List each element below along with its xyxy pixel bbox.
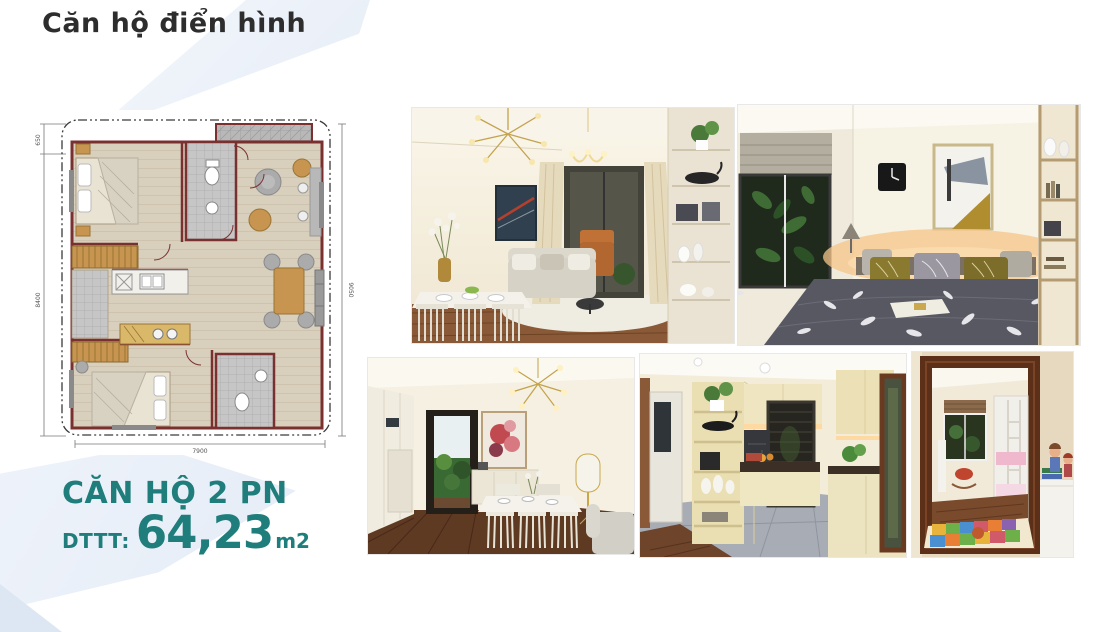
page-title: Căn hộ điển hình	[42, 8, 306, 39]
photo-living-dining-room	[412, 108, 734, 343]
plan-rooms	[69, 142, 324, 430]
decorative-shape-corner	[0, 584, 62, 632]
area-label: DTTT:	[62, 529, 130, 553]
area-unit: m2	[275, 529, 310, 553]
photo-master-bedroom	[738, 105, 1080, 345]
slide-page: Căn hộ điển hình 650 8400 9050	[0, 0, 1100, 632]
floor-plan-drawing: 650 8400 9050 7900	[20, 110, 355, 455]
dim-label-8400: 8400	[35, 292, 42, 307]
dim-label-9050: 9050	[347, 282, 354, 297]
photo-kids-room-through-door	[912, 352, 1073, 557]
dim-label-650: 650	[35, 134, 42, 146]
floor-plan: 650 8400 9050 7900	[20, 110, 355, 455]
photo-dining-hallway	[368, 358, 634, 554]
dim-label-7900: 7900	[192, 448, 207, 455]
area-line: DTTT: 64,23 m2	[62, 506, 310, 559]
area-value: 64,23	[136, 506, 273, 559]
photo-kitchen	[640, 354, 906, 557]
